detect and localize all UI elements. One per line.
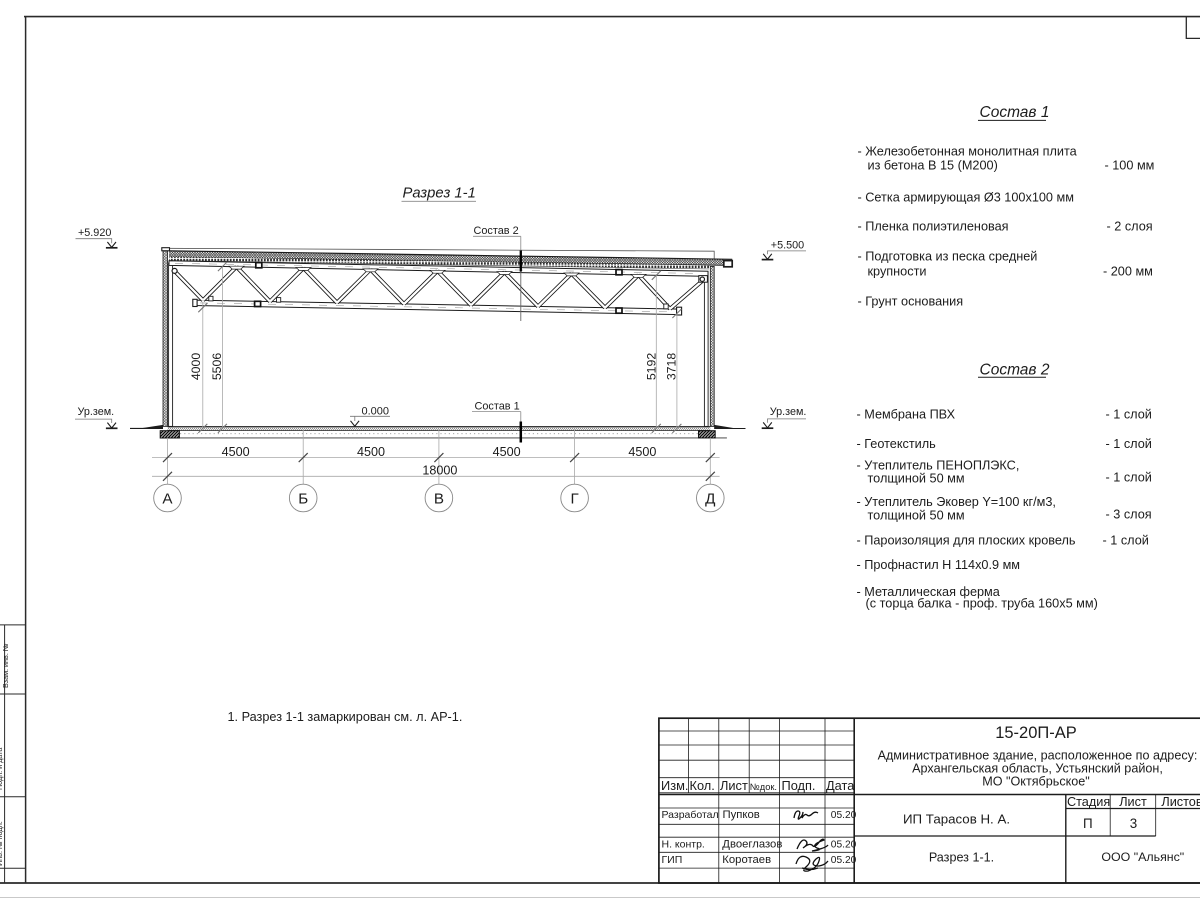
svg-text:Состав 2: Состав 2 bbox=[980, 361, 1050, 378]
svg-text:Изм.: Изм. bbox=[661, 778, 688, 793]
svg-text:Архангельская область, Устьянс: Архангельская область, Устьянский район, bbox=[912, 761, 1163, 775]
svg-text:Подп. и дата: Подп. и дата bbox=[0, 748, 4, 790]
svg-text:15-20П-АР: 15-20П-АР bbox=[995, 724, 1077, 742]
svg-text:(с торца балка - проф. труба 1: (с торца балка - проф. труба 160x5 мм) bbox=[866, 597, 1098, 611]
svg-text:Взам. инв. №: Взам. инв. № bbox=[1, 643, 10, 688]
svg-text:3718: 3718 bbox=[665, 353, 679, 381]
svg-text:05.20: 05.20 bbox=[831, 839, 857, 850]
svg-text:- Пленка полиэтиленовая: - Пленка полиэтиленовая bbox=[858, 220, 1009, 234]
svg-text:Разрез 1-1.: Разрез 1-1. bbox=[929, 850, 994, 864]
svg-text:Д: Д bbox=[705, 490, 715, 507]
svg-text:Дата: Дата bbox=[826, 778, 855, 793]
svg-text:крупности: крупности bbox=[868, 265, 927, 279]
svg-text:Подп.: Подп. bbox=[782, 778, 816, 793]
svg-text:- Профнастил Н 114x0.9 мм: - Профнастил Н 114x0.9 мм bbox=[857, 558, 1021, 572]
svg-text:Пупков: Пупков bbox=[723, 809, 760, 821]
svg-text:- 1 слой: - 1 слой bbox=[1106, 471, 1152, 485]
svg-text:Административное здание, распо: Административное здание, расположенное п… bbox=[878, 748, 1198, 762]
svg-text:4500: 4500 bbox=[222, 445, 250, 459]
svg-text:№док.: №док. bbox=[750, 782, 777, 792]
svg-text:+5.500: +5.500 bbox=[771, 239, 804, 251]
svg-text:+5.920: +5.920 bbox=[78, 227, 111, 239]
svg-text:из бетона В 15 (М200): из бетона В 15 (М200) bbox=[868, 158, 998, 172]
svg-text:- Грунт основания: - Грунт основания bbox=[858, 294, 964, 308]
svg-text:Разработал: Разработал bbox=[662, 809, 719, 821]
svg-text:18000: 18000 bbox=[422, 464, 457, 478]
svg-text:Листов: Листов bbox=[1161, 795, 1200, 809]
svg-text:- Пароизоляция для плоских кро: - Пароизоляция для плоских кровель bbox=[857, 533, 1076, 547]
svg-text:- 100 мм: - 100 мм bbox=[1105, 158, 1155, 172]
svg-text:Кол.: Кол. bbox=[690, 778, 715, 793]
svg-text:Лист: Лист bbox=[1119, 795, 1147, 809]
svg-text:- 200 мм: - 200 мм bbox=[1103, 265, 1153, 279]
svg-text:Г: Г bbox=[570, 490, 578, 507]
svg-text:Н. контр.: Н. контр. bbox=[662, 838, 705, 850]
svg-text:МО "Октябрьское": МО "Октябрьское" bbox=[982, 774, 1090, 788]
svg-text:- 1 слой: - 1 слой bbox=[1103, 533, 1149, 547]
svg-text:Стадия: Стадия bbox=[1067, 795, 1110, 809]
svg-text:- Геотекстиль: - Геотекстиль bbox=[857, 437, 937, 451]
svg-text:П: П bbox=[1083, 816, 1093, 831]
svg-text:4500: 4500 bbox=[493, 445, 521, 459]
svg-text:толщиной 50 мм: толщиной 50 мм bbox=[868, 472, 965, 486]
svg-text:- Мембрана ПВХ: - Мембрана ПВХ bbox=[857, 407, 956, 421]
svg-text:ИП Тарасов Н. А.: ИП Тарасов Н. А. bbox=[903, 811, 1010, 826]
svg-text:5506: 5506 bbox=[210, 353, 224, 381]
svg-text:0.000: 0.000 bbox=[362, 405, 390, 417]
svg-text:- 1 слой: - 1 слой bbox=[1106, 407, 1152, 421]
svg-text:05.20: 05.20 bbox=[831, 810, 857, 821]
svg-text:Состав 1: Состав 1 bbox=[475, 401, 520, 413]
svg-text:4000: 4000 bbox=[189, 353, 203, 381]
svg-text:- Сетка армирующая Ø3 100x100: - Сетка армирующая Ø3 100x100 мм bbox=[858, 191, 1074, 205]
svg-text:ГИП: ГИП bbox=[662, 854, 683, 866]
svg-text:ООО "Альянс": ООО "Альянс" bbox=[1101, 850, 1184, 864]
svg-text:4500: 4500 bbox=[357, 445, 385, 459]
svg-text:толщиной 50 мм: толщиной 50 мм bbox=[868, 509, 965, 523]
svg-text:- Железобетонная монолитная п: - Железобетонная монолитная плита bbox=[858, 145, 1078, 159]
svg-text:Ур.зем.: Ур.зем. bbox=[78, 406, 115, 418]
svg-text:Коротаев: Коротаев bbox=[722, 854, 771, 866]
svg-text:В: В bbox=[434, 490, 444, 507]
svg-text:- 3 слоя: - 3 слоя bbox=[1106, 508, 1152, 522]
svg-text:- 2 слоя: - 2 слоя bbox=[1107, 220, 1153, 234]
svg-text:- Утеплитель Эковер Y=100 кг/м: - Утеплитель Эковер Y=100 кг/м3, bbox=[857, 495, 1056, 509]
svg-text:- Утеплитель ПЕНОПЛЭКС,: - Утеплитель ПЕНОПЛЭКС, bbox=[857, 458, 1020, 472]
svg-text:Состав 2: Состав 2 bbox=[474, 225, 519, 237]
svg-text:1. Разрез 1-1 замаркирован см.: 1. Разрез 1-1 замаркирован см. л. АР-1. bbox=[228, 710, 463, 724]
svg-text:Двоеглазов: Двоеглазов bbox=[722, 838, 782, 850]
svg-text:- 1 слой: - 1 слой bbox=[1106, 437, 1152, 451]
svg-text:05.20: 05.20 bbox=[831, 855, 857, 866]
svg-text:Лист: Лист bbox=[720, 778, 748, 793]
svg-text:Ур.зем.: Ур.зем. bbox=[770, 406, 807, 418]
svg-text:4500: 4500 bbox=[628, 445, 656, 459]
svg-text:Б: Б bbox=[298, 490, 308, 507]
svg-text:- Подготовка из песка средней: - Подготовка из песка средней bbox=[858, 249, 1038, 263]
svg-text:5192: 5192 bbox=[645, 353, 659, 381]
svg-text:Состав 1: Состав 1 bbox=[980, 104, 1050, 121]
svg-text:3: 3 bbox=[1130, 816, 1137, 831]
svg-text:А: А bbox=[162, 490, 173, 507]
svg-text:Разрез 1-1: Разрез 1-1 bbox=[403, 186, 476, 202]
svg-text:Инв. № подл.: Инв. № подл. bbox=[0, 821, 4, 866]
